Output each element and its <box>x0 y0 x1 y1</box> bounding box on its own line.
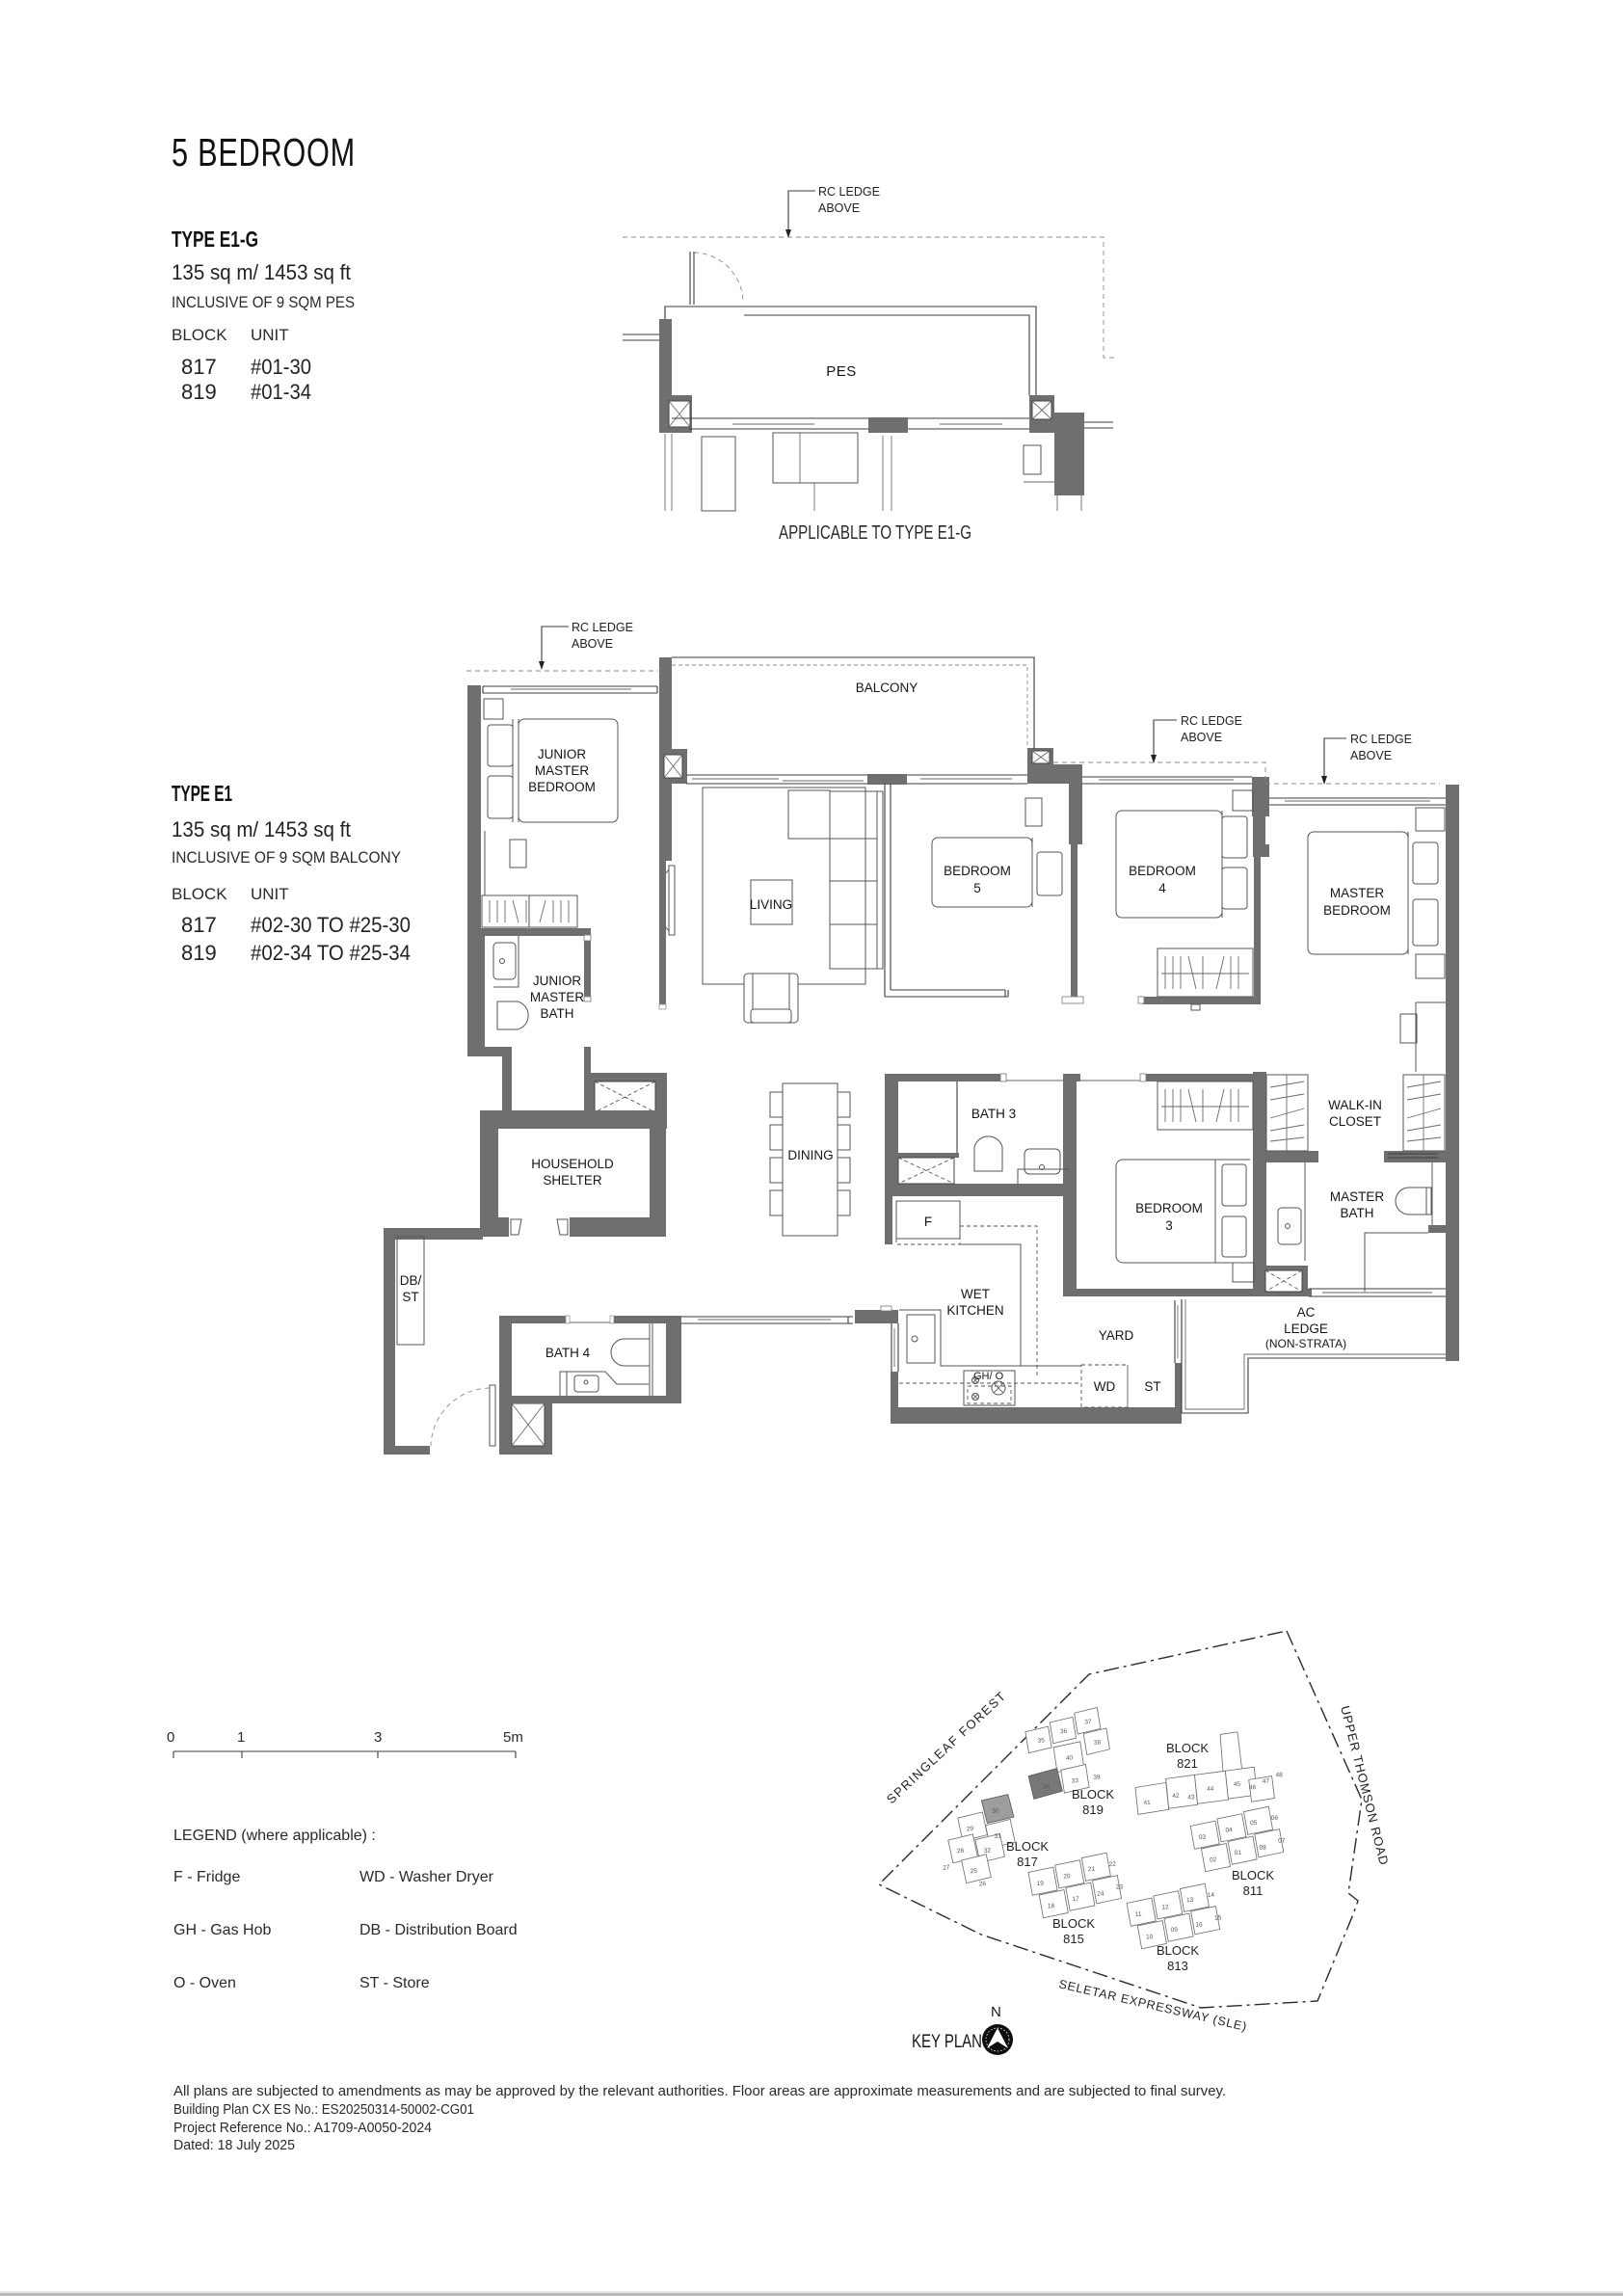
svg-text:26: 26 <box>979 1881 987 1888</box>
svg-text:48: 48 <box>1275 1772 1283 1778</box>
svg-text:JUNIOR: JUNIOR <box>538 747 587 761</box>
svg-text:10: 10 <box>1146 1934 1154 1940</box>
svg-text:36: 36 <box>1060 1728 1068 1736</box>
svg-text:08: 08 <box>1259 1844 1266 1851</box>
svg-text:05: 05 <box>1250 1820 1258 1827</box>
svg-text:ST: ST <box>402 1290 418 1304</box>
svg-text:N: N <box>991 2004 1001 2020</box>
svg-text:12: 12 <box>1161 1904 1169 1910</box>
svg-text:BEDROOM: BEDROOM <box>944 864 1011 878</box>
svg-text:35: 35 <box>1037 1737 1045 1745</box>
svg-text:20: 20 <box>1063 1873 1071 1880</box>
svg-text:TYPE E1: TYPE E1 <box>172 781 232 806</box>
svg-text:815: 815 <box>1063 1932 1084 1946</box>
svg-text:SHELTER: SHELTER <box>543 1173 602 1188</box>
svg-text:821: 821 <box>1177 1756 1198 1771</box>
svg-text:09: 09 <box>1170 1927 1178 1934</box>
svg-text:817: 817 <box>1017 1855 1038 1869</box>
svg-text:47: 47 <box>1263 1778 1270 1785</box>
svg-text:5 BEDROOM: 5 BEDROOM <box>172 130 356 174</box>
svg-text:31: 31 <box>994 1832 1001 1840</box>
svg-text:4: 4 <box>1158 881 1166 895</box>
svg-text:22: 22 <box>1109 1861 1117 1868</box>
svg-text:07: 07 <box>1278 1837 1286 1844</box>
svg-text:43: 43 <box>1187 1794 1195 1801</box>
svg-text:29: 29 <box>967 1826 974 1833</box>
svg-text:3: 3 <box>1165 1218 1173 1233</box>
svg-text:33: 33 <box>1071 1777 1078 1785</box>
svg-text:819: 819 <box>1082 1802 1104 1817</box>
svg-text:04: 04 <box>1225 1827 1233 1833</box>
svg-text:01: 01 <box>1235 1850 1242 1856</box>
svg-text:O - Oven: O - Oven <box>173 1975 236 1991</box>
svg-text:03: 03 <box>1199 1834 1207 1841</box>
svg-text:BATH: BATH <box>1340 1206 1373 1220</box>
svg-text:ST - Store: ST - Store <box>359 1975 430 1991</box>
svg-text:BALCONY: BALCONY <box>856 681 918 695</box>
svg-text:BLOCK: BLOCK <box>1157 1943 1199 1958</box>
svg-text:INCLUSIVE OF 9 SQM PES: INCLUSIVE OF 9 SQM PES <box>172 293 355 311</box>
svg-text:BATH: BATH <box>540 1006 573 1021</box>
svg-text:06: 06 <box>1271 1815 1279 1822</box>
svg-text:F: F <box>924 1215 932 1229</box>
svg-text:817: 817 <box>181 913 217 937</box>
svg-text:RC LEDGE: RC LEDGE <box>1350 733 1412 746</box>
svg-text:JUNIOR: JUNIOR <box>533 974 582 988</box>
svg-text:ABOVE: ABOVE <box>818 201 860 215</box>
svg-text:BLOCK: BLOCK <box>1166 1741 1209 1755</box>
svg-text:MASTER: MASTER <box>1330 886 1385 900</box>
svg-text:AC: AC <box>1297 1305 1316 1320</box>
svg-text:BLOCK: BLOCK <box>172 326 227 344</box>
svg-text:BLOCK: BLOCK <box>1232 1868 1274 1882</box>
svg-text:811: 811 <box>1243 1883 1264 1898</box>
svg-text:15: 15 <box>1214 1914 1222 1921</box>
svg-text:44: 44 <box>1207 1786 1214 1793</box>
svg-text:DINING: DINING <box>787 1148 833 1162</box>
svg-text:17: 17 <box>1072 1896 1079 1903</box>
svg-text:5: 5 <box>973 881 981 895</box>
svg-text:BLOCK: BLOCK <box>1052 1916 1095 1931</box>
svg-text:KITCHEN: KITCHEN <box>946 1303 1003 1318</box>
svg-text:Building Plan CX ES No.: ES202: Building Plan CX ES No.: ES20250314-5000… <box>173 2101 474 2118</box>
svg-text:UNIT: UNIT <box>251 885 289 903</box>
svg-text:BEDROOM: BEDROOM <box>1323 903 1391 918</box>
svg-text:F - Fridge: F - Fridge <box>173 1869 240 1885</box>
svg-text:19: 19 <box>1036 1881 1044 1887</box>
svg-text:0: 0 <box>167 1729 174 1746</box>
svg-text:41: 41 <box>1143 1800 1151 1806</box>
svg-text:MASTER: MASTER <box>535 763 590 778</box>
svg-text:BLOCK: BLOCK <box>1072 1787 1114 1802</box>
svg-text:GH - Gas Hob: GH - Gas Hob <box>173 1922 271 1938</box>
svg-text:MASTER: MASTER <box>530 990 585 1004</box>
svg-text:DB - Distribution Board: DB - Distribution Board <box>359 1922 518 1938</box>
svg-text:PES: PES <box>826 363 857 380</box>
svg-text:11: 11 <box>1135 1911 1142 1918</box>
svg-text:APPLICABLE TO TYPE E1-G: APPLICABLE TO TYPE E1-G <box>779 522 971 544</box>
svg-text:42: 42 <box>1172 1793 1180 1800</box>
svg-text:02: 02 <box>1210 1856 1217 1863</box>
svg-text:YARD: YARD <box>1099 1328 1134 1343</box>
svg-text:819: 819 <box>181 380 217 404</box>
svg-text:817: 817 <box>181 355 217 379</box>
svg-text:Dated: 18 July 2025: Dated: 18 July 2025 <box>173 2137 295 2153</box>
svg-text:All plans are subjected to ame: All plans are subjected to amendments as… <box>173 2083 1226 2099</box>
svg-text:16: 16 <box>1195 1921 1203 1928</box>
svg-text:Project Reference No.: A1709-A: Project Reference No.: A1709-A0050-2024 <box>173 2120 432 2136</box>
svg-text:13: 13 <box>1186 1897 1194 1904</box>
svg-text:39: 39 <box>1093 1774 1101 1781</box>
svg-text:CLOSET: CLOSET <box>1329 1114 1381 1129</box>
svg-text:DB/: DB/ <box>400 1273 422 1288</box>
svg-text:BATH 4: BATH 4 <box>545 1346 591 1360</box>
svg-text:#02-34 TO #25-34: #02-34 TO #25-34 <box>251 941 411 965</box>
svg-text:14: 14 <box>1208 1892 1215 1899</box>
svg-text:BEDROOM: BEDROOM <box>1135 1201 1203 1215</box>
svg-text:ST: ST <box>1144 1379 1160 1394</box>
svg-text:37: 37 <box>1084 1719 1092 1726</box>
svg-text:BEDROOM: BEDROOM <box>1129 864 1196 878</box>
svg-text:LIVING: LIVING <box>750 897 792 912</box>
svg-text:1: 1 <box>237 1729 245 1746</box>
svg-text:46: 46 <box>1249 1784 1257 1791</box>
svg-text:RC LEDGE: RC LEDGE <box>572 621 633 634</box>
svg-text:45: 45 <box>1234 1781 1241 1788</box>
svg-text:UNIT: UNIT <box>251 326 289 344</box>
svg-text:32: 32 <box>984 1847 992 1855</box>
svg-text:GH/ O: GH/ O <box>973 1371 1004 1382</box>
svg-text:BATH 3: BATH 3 <box>971 1107 1016 1121</box>
svg-text:ABOVE: ABOVE <box>1350 749 1392 762</box>
svg-text:21: 21 <box>1088 1866 1096 1873</box>
svg-text:TYPE E1-G: TYPE E1-G <box>172 227 258 252</box>
svg-text:KEY PLAN: KEY PLAN <box>912 2032 982 2052</box>
svg-text:#01-34: #01-34 <box>251 380 311 404</box>
svg-text:18: 18 <box>1048 1903 1055 1909</box>
svg-text:LEDGE: LEDGE <box>1284 1322 1328 1336</box>
svg-text:24: 24 <box>1097 1890 1104 1897</box>
svg-text:WET: WET <box>961 1287 990 1301</box>
svg-text:135 sq m/ 1453 sq ft: 135 sq m/ 1453 sq ft <box>172 817 351 841</box>
svg-text:813: 813 <box>1167 1959 1188 1973</box>
svg-text:LEGEND (where applicable) :: LEGEND (where applicable) : <box>173 1828 376 1844</box>
svg-text:WD - Washer Dryer: WD - Washer Dryer <box>359 1869 494 1885</box>
svg-text:HOUSEHOLD: HOUSEHOLD <box>531 1157 614 1171</box>
svg-text:BLOCK: BLOCK <box>172 885 227 903</box>
svg-text:RC LEDGE: RC LEDGE <box>818 185 880 199</box>
svg-text:3: 3 <box>374 1729 382 1746</box>
svg-text:ABOVE: ABOVE <box>572 637 613 651</box>
svg-text:ABOVE: ABOVE <box>1181 731 1222 744</box>
svg-text:40: 40 <box>1066 1754 1074 1762</box>
svg-text:RC LEDGE: RC LEDGE <box>1181 714 1242 728</box>
svg-text:(NON-STRATA): (NON-STRATA) <box>1265 1337 1346 1350</box>
svg-text:135 sq m/ 1453 sq ft: 135 sq m/ 1453 sq ft <box>172 260 351 284</box>
svg-text:#01-30: #01-30 <box>251 355 311 379</box>
svg-text:BLOCK: BLOCK <box>1006 1839 1049 1854</box>
svg-text:27: 27 <box>943 1864 950 1872</box>
svg-text:WD: WD <box>1094 1379 1116 1394</box>
svg-text:34: 34 <box>1043 1783 1051 1791</box>
svg-text:30: 30 <box>992 1807 999 1815</box>
svg-text:MASTER: MASTER <box>1330 1189 1385 1204</box>
svg-text:25: 25 <box>970 1868 977 1876</box>
svg-text:38: 38 <box>1094 1739 1102 1747</box>
svg-text:5m: 5m <box>503 1729 523 1746</box>
svg-text:819: 819 <box>181 941 217 965</box>
svg-text:23: 23 <box>1116 1883 1124 1890</box>
svg-text:28: 28 <box>957 1848 965 1855</box>
svg-text:BEDROOM: BEDROOM <box>528 780 596 794</box>
svg-text:#02-30 TO #25-30: #02-30 TO #25-30 <box>251 913 411 937</box>
svg-text:WALK-IN: WALK-IN <box>1328 1098 1382 1112</box>
svg-text:INCLUSIVE OF 9 SQM BALCONY: INCLUSIVE OF 9 SQM BALCONY <box>172 848 401 867</box>
